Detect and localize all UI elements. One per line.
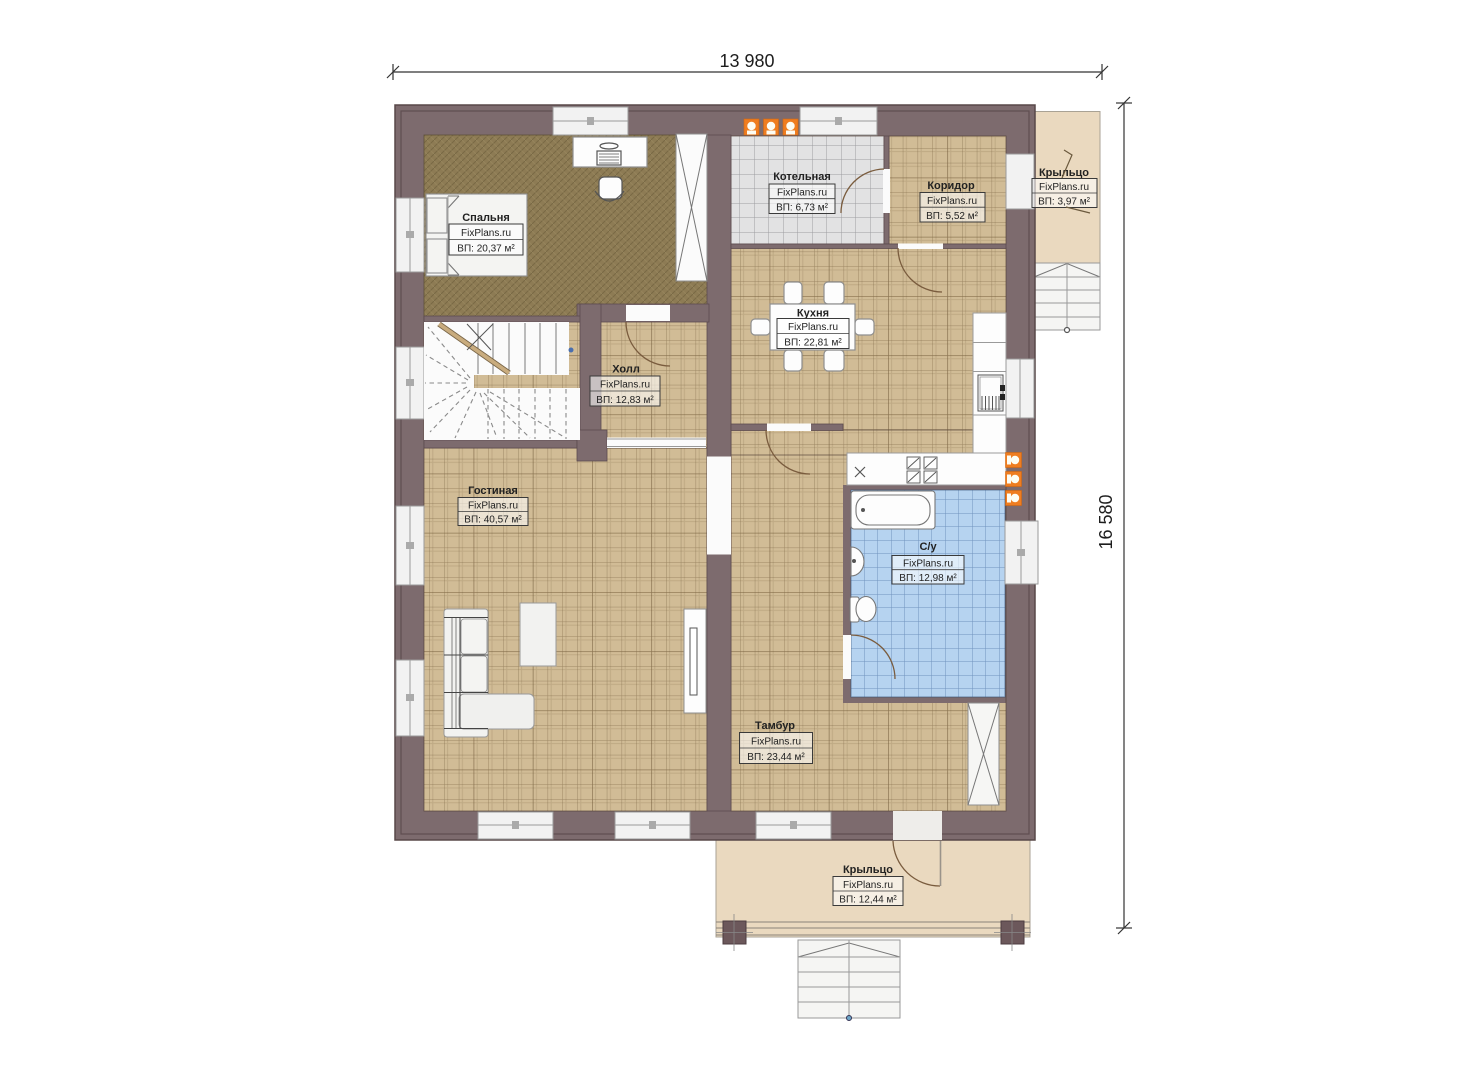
svg-text:FixPlans.ru: FixPlans.ru [903, 559, 953, 570]
svg-text:FixPlans.ru: FixPlans.ru [461, 228, 511, 239]
svg-text:Спальня: Спальня [462, 212, 510, 224]
svg-text:ВП: 40,57 м²: ВП: 40,57 м² [464, 515, 522, 526]
svg-text:FixPlans.ru: FixPlans.ru [843, 880, 893, 891]
svg-text:Кухня: Кухня [797, 308, 829, 320]
svg-text:ВП: 12,98 м²: ВП: 12,98 м² [899, 573, 957, 584]
svg-text:FixPlans.ru: FixPlans.ru [1039, 182, 1089, 193]
svg-text:Котельная: Котельная [773, 171, 831, 183]
svg-text:ВП: 22,81 м²: ВП: 22,81 м² [784, 338, 842, 349]
svg-text:FixPlans.ru: FixPlans.ru [777, 188, 827, 199]
svg-text:ВП: 12,44 м²: ВП: 12,44 м² [839, 895, 897, 906]
svg-text:ВП: 3,97 м²: ВП: 3,97 м² [1038, 197, 1091, 208]
svg-text:Холл: Холл [612, 364, 640, 376]
svg-text:С/у: С/у [919, 541, 937, 553]
svg-text:ВП: 12,83 м²: ВП: 12,83 м² [596, 395, 654, 406]
svg-text:Коридор: Коридор [927, 180, 975, 192]
svg-text:FixPlans.ru: FixPlans.ru [751, 737, 801, 748]
svg-text:Тамбур: Тамбур [755, 720, 795, 732]
svg-text:ВП: 5,52 м²: ВП: 5,52 м² [926, 211, 979, 222]
svg-text:FixPlans.ru: FixPlans.ru [788, 322, 838, 333]
svg-text:16 580: 16 580 [1096, 494, 1116, 549]
svg-text:ВП: 6,73 м²: ВП: 6,73 м² [776, 203, 829, 214]
svg-text:FixPlans.ru: FixPlans.ru [468, 501, 518, 512]
svg-text:FixPlans.ru: FixPlans.ru [600, 380, 650, 391]
svg-text:ВП: 20,37 м²: ВП: 20,37 м² [457, 244, 515, 255]
svg-text:Гостиная: Гостиная [468, 485, 518, 497]
svg-text:Крыльцо: Крыльцо [843, 864, 893, 876]
svg-text:FixPlans.ru: FixPlans.ru [927, 196, 977, 207]
svg-text:ВП: 23,44 м²: ВП: 23,44 м² [747, 752, 805, 763]
svg-text:13 980: 13 980 [719, 51, 774, 71]
